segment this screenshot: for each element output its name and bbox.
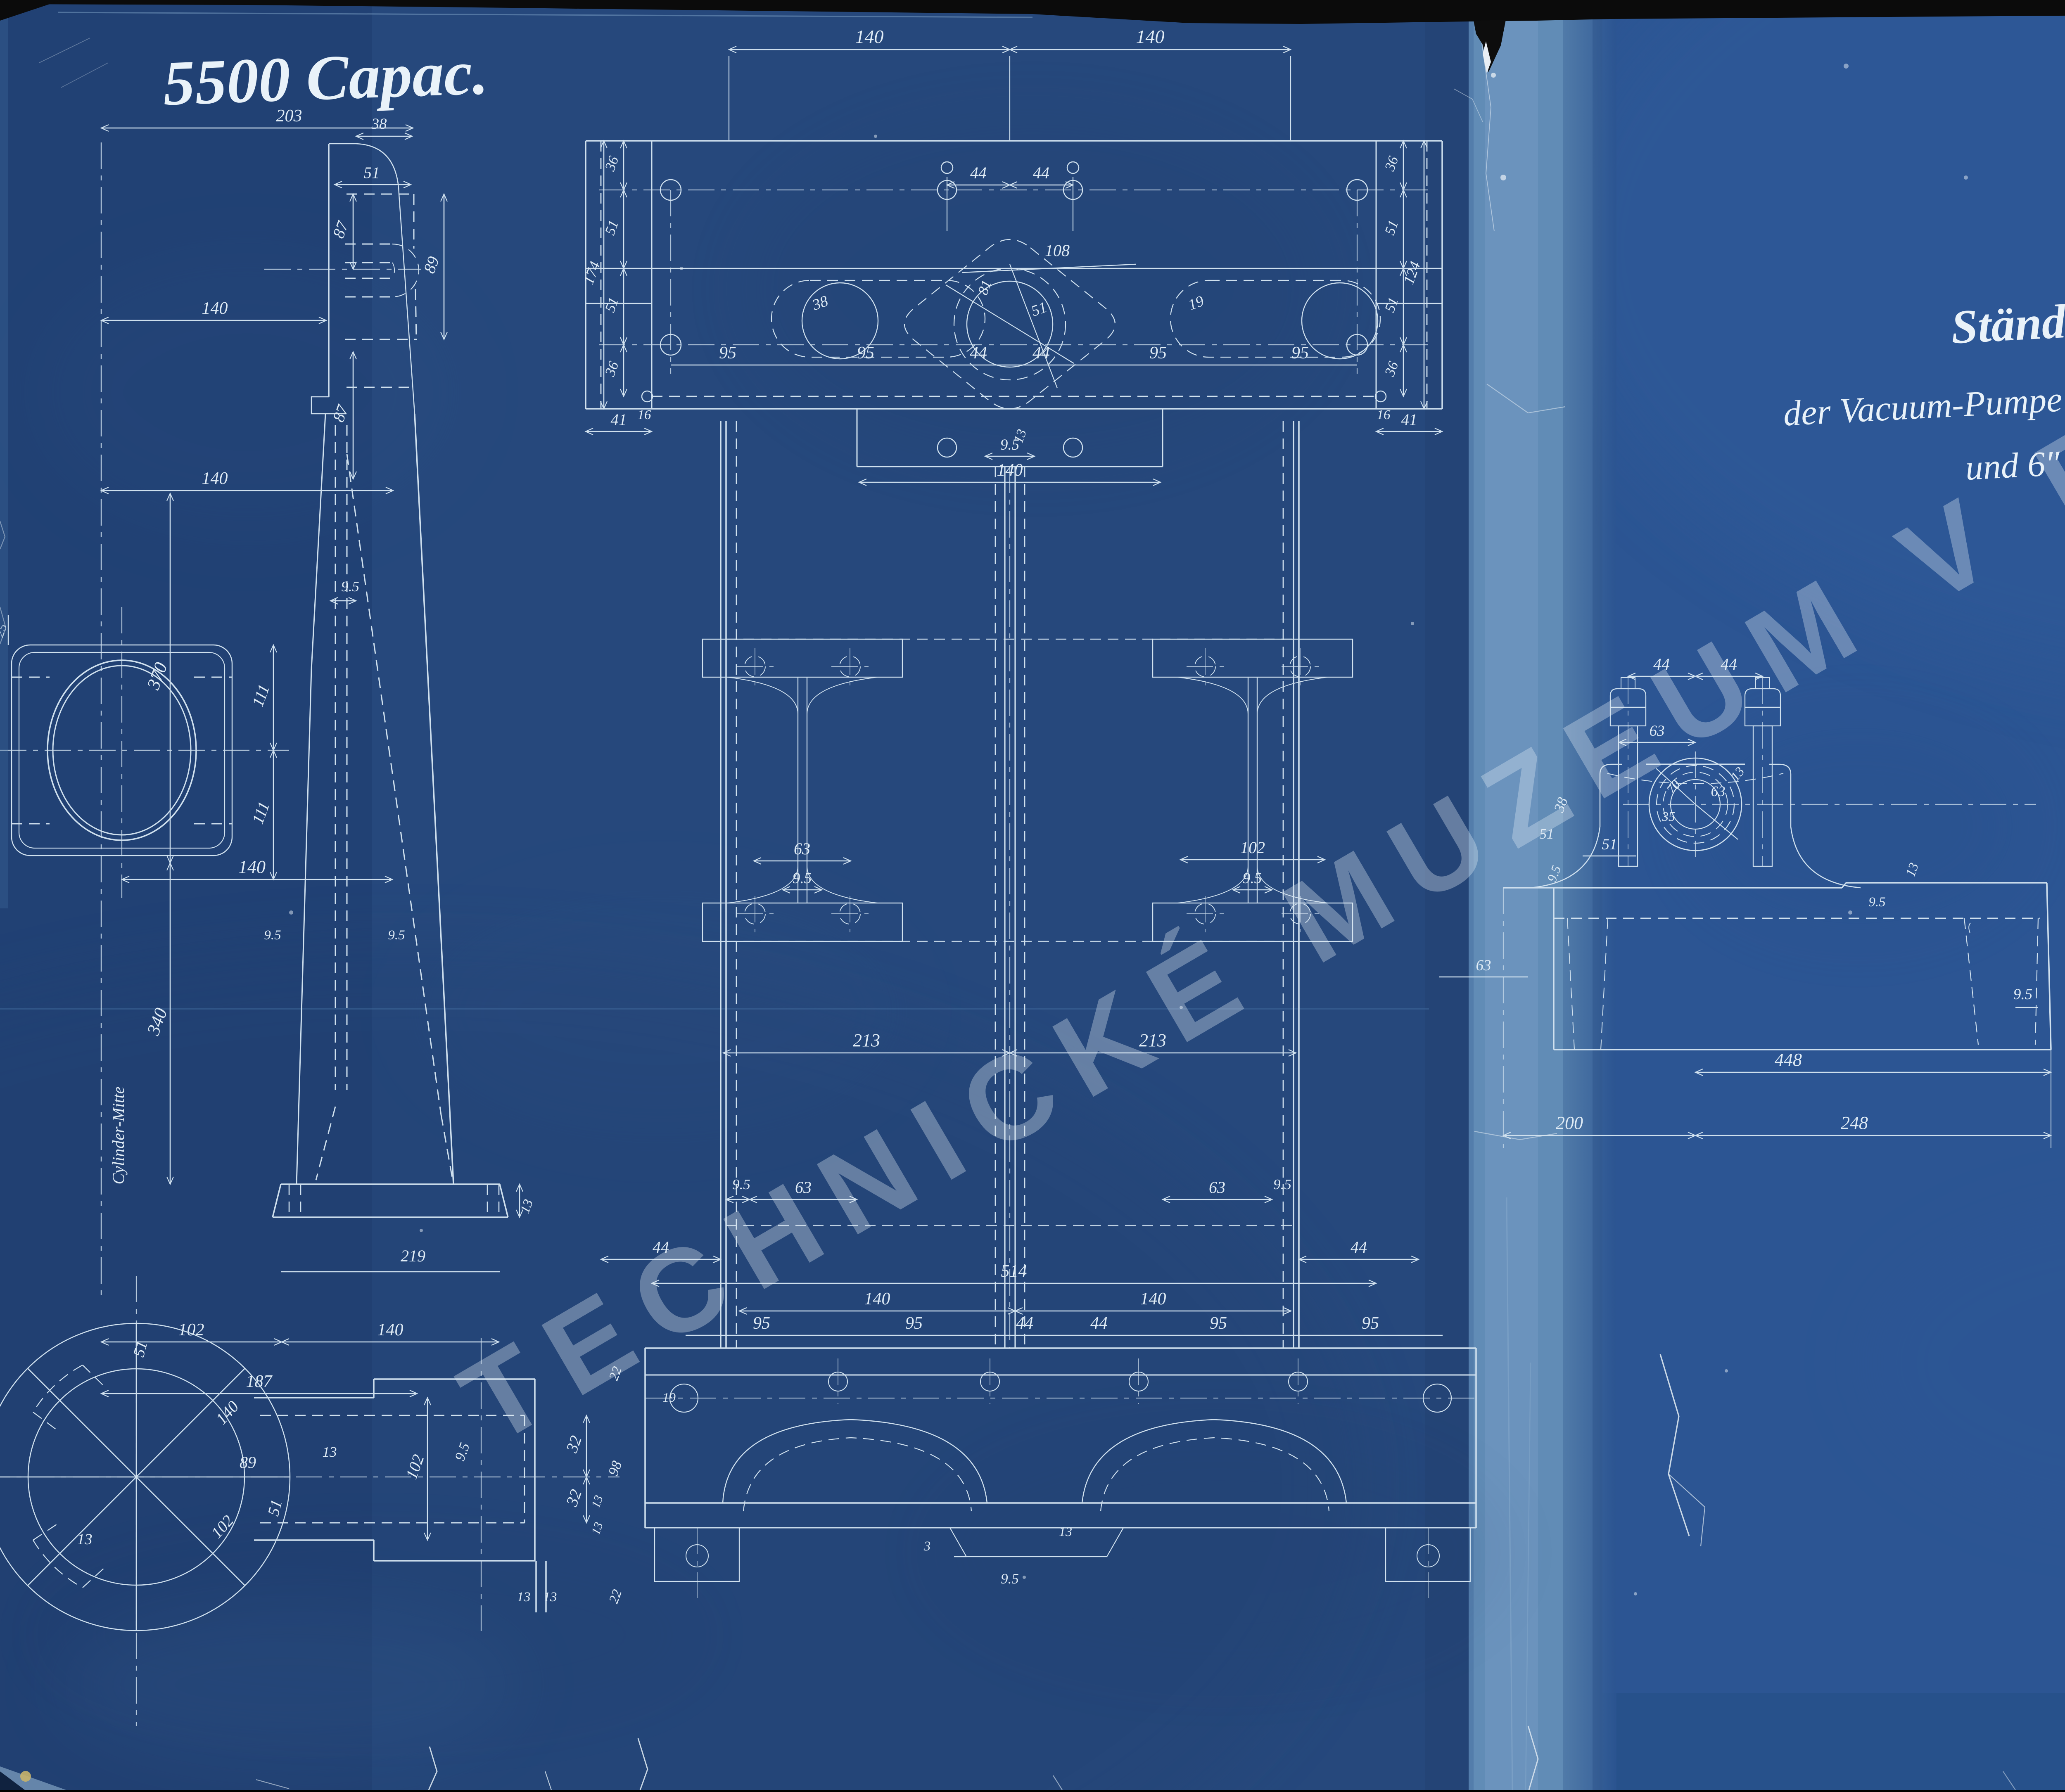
svg-text:19: 19: [662, 1390, 676, 1405]
svg-text:Cylinder-Mitte: Cylinder-Mitte: [109, 1087, 128, 1185]
svg-text:16: 16: [638, 408, 652, 422]
svg-text:140: 140: [202, 299, 228, 318]
svg-text:9.5: 9.5: [1868, 895, 1885, 910]
svg-text:89: 89: [240, 1453, 256, 1472]
svg-text:95: 95: [905, 1314, 923, 1333]
svg-text:514: 514: [1001, 1262, 1027, 1281]
svg-text:41: 41: [611, 411, 627, 429]
svg-text:140: 140: [1136, 26, 1165, 47]
svg-text:248: 248: [1841, 1113, 1868, 1133]
svg-text:140: 140: [202, 469, 228, 488]
svg-text:200: 200: [1556, 1113, 1583, 1133]
svg-text:9.5: 9.5: [264, 928, 281, 943]
svg-text:5500 Capac.: 5500 Capac.: [162, 37, 489, 119]
svg-text:95: 95: [1210, 1314, 1227, 1333]
svg-text:38: 38: [371, 116, 387, 133]
svg-text:108: 108: [1045, 241, 1070, 260]
svg-text:95: 95: [719, 344, 736, 363]
svg-text:140: 140: [238, 857, 266, 877]
svg-text:44: 44: [970, 344, 987, 363]
svg-text:35: 35: [1661, 809, 1675, 824]
svg-text:13: 13: [77, 1531, 93, 1548]
svg-text:63: 63: [1209, 1178, 1225, 1197]
svg-text:140: 140: [1140, 1289, 1166, 1308]
svg-text:51: 51: [1602, 836, 1617, 853]
svg-text:9.5: 9.5: [388, 928, 405, 943]
svg-text:3: 3: [923, 1539, 931, 1554]
svg-text:44: 44: [1090, 1314, 1108, 1333]
svg-text:13: 13: [517, 1590, 531, 1605]
svg-text:140: 140: [377, 1320, 404, 1339]
svg-text:44: 44: [1351, 1238, 1367, 1256]
svg-text:213: 213: [853, 1030, 880, 1050]
svg-text:44: 44: [970, 164, 987, 182]
svg-text:41: 41: [1401, 411, 1417, 429]
svg-text:102: 102: [1240, 838, 1265, 857]
svg-text:95: 95: [1149, 344, 1167, 363]
svg-text:44: 44: [1033, 164, 1049, 182]
svg-text:95: 95: [1291, 344, 1309, 363]
svg-text:187: 187: [246, 1372, 273, 1391]
svg-text:13: 13: [544, 1590, 557, 1605]
svg-text:63: 63: [794, 839, 810, 858]
svg-text:9.5: 9.5: [2013, 986, 2032, 1003]
svg-text:9.5: 9.5: [1273, 1176, 1291, 1192]
svg-text:219: 219: [401, 1247, 425, 1265]
svg-text:9.5: 9.5: [341, 578, 359, 595]
svg-text:44: 44: [1016, 1314, 1033, 1333]
svg-text:13: 13: [323, 1444, 337, 1460]
svg-text:140: 140: [864, 1289, 890, 1308]
svg-text:95: 95: [1362, 1314, 1379, 1333]
svg-text:9.5: 9.5: [1000, 436, 1019, 453]
svg-text:63: 63: [1476, 957, 1491, 974]
svg-text:13: 13: [1059, 1524, 1072, 1539]
svg-text:140: 140: [855, 26, 884, 47]
svg-text:448: 448: [1775, 1050, 1802, 1070]
svg-text:9.5: 9.5: [1001, 1571, 1019, 1587]
svg-text:9.5: 9.5: [793, 870, 812, 887]
svg-text:16: 16: [1377, 408, 1391, 422]
svg-text:95: 95: [857, 344, 874, 363]
svg-text:44: 44: [1032, 344, 1050, 363]
svg-text:63: 63: [1711, 783, 1726, 799]
svg-text:51: 51: [364, 164, 380, 182]
